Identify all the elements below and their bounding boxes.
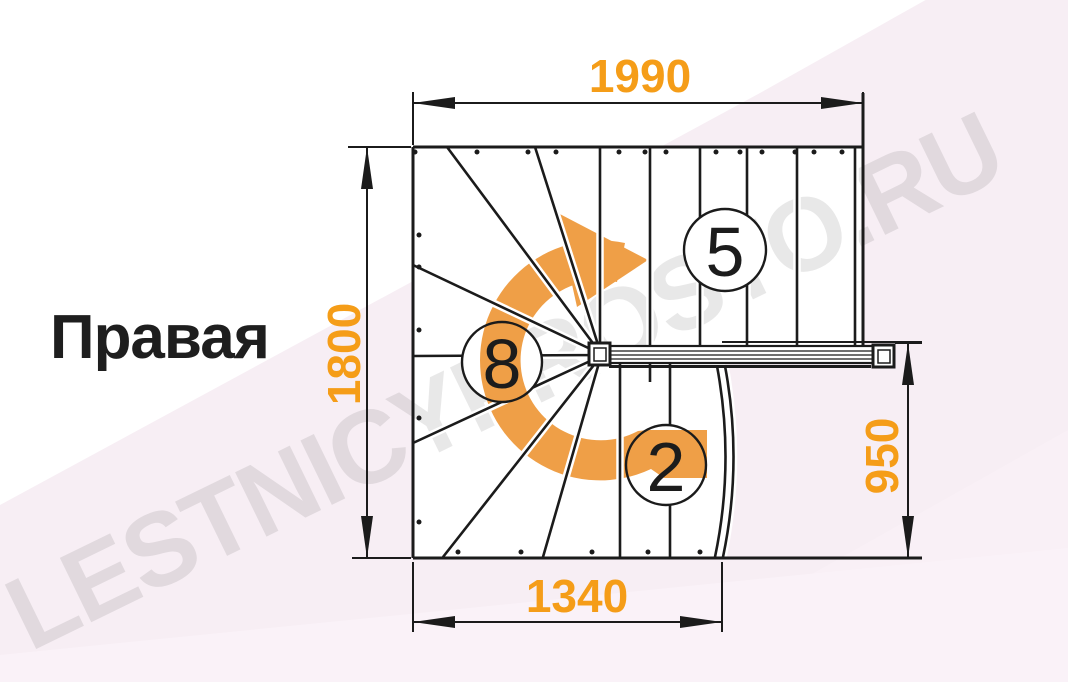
staircase-plan-page: LESTNICYPROSTO.RU — [0, 0, 1068, 682]
step-8-number: 8 — [483, 325, 522, 403]
dimension-top-value: 1990 — [589, 50, 691, 102]
step-2-number: 2 — [647, 428, 686, 506]
step-5-number: 5 — [706, 213, 745, 291]
page-title: Правая — [50, 303, 269, 372]
dimension-bottom-value: 1340 — [526, 570, 628, 622]
dimension-right-value: 950 — [856, 418, 908, 495]
staircase-plan-drawing: LESTNICYPROSTO.RU — [0, 0, 1068, 682]
dimension-left-value: 1800 — [318, 303, 370, 405]
landing-beam — [589, 342, 922, 367]
